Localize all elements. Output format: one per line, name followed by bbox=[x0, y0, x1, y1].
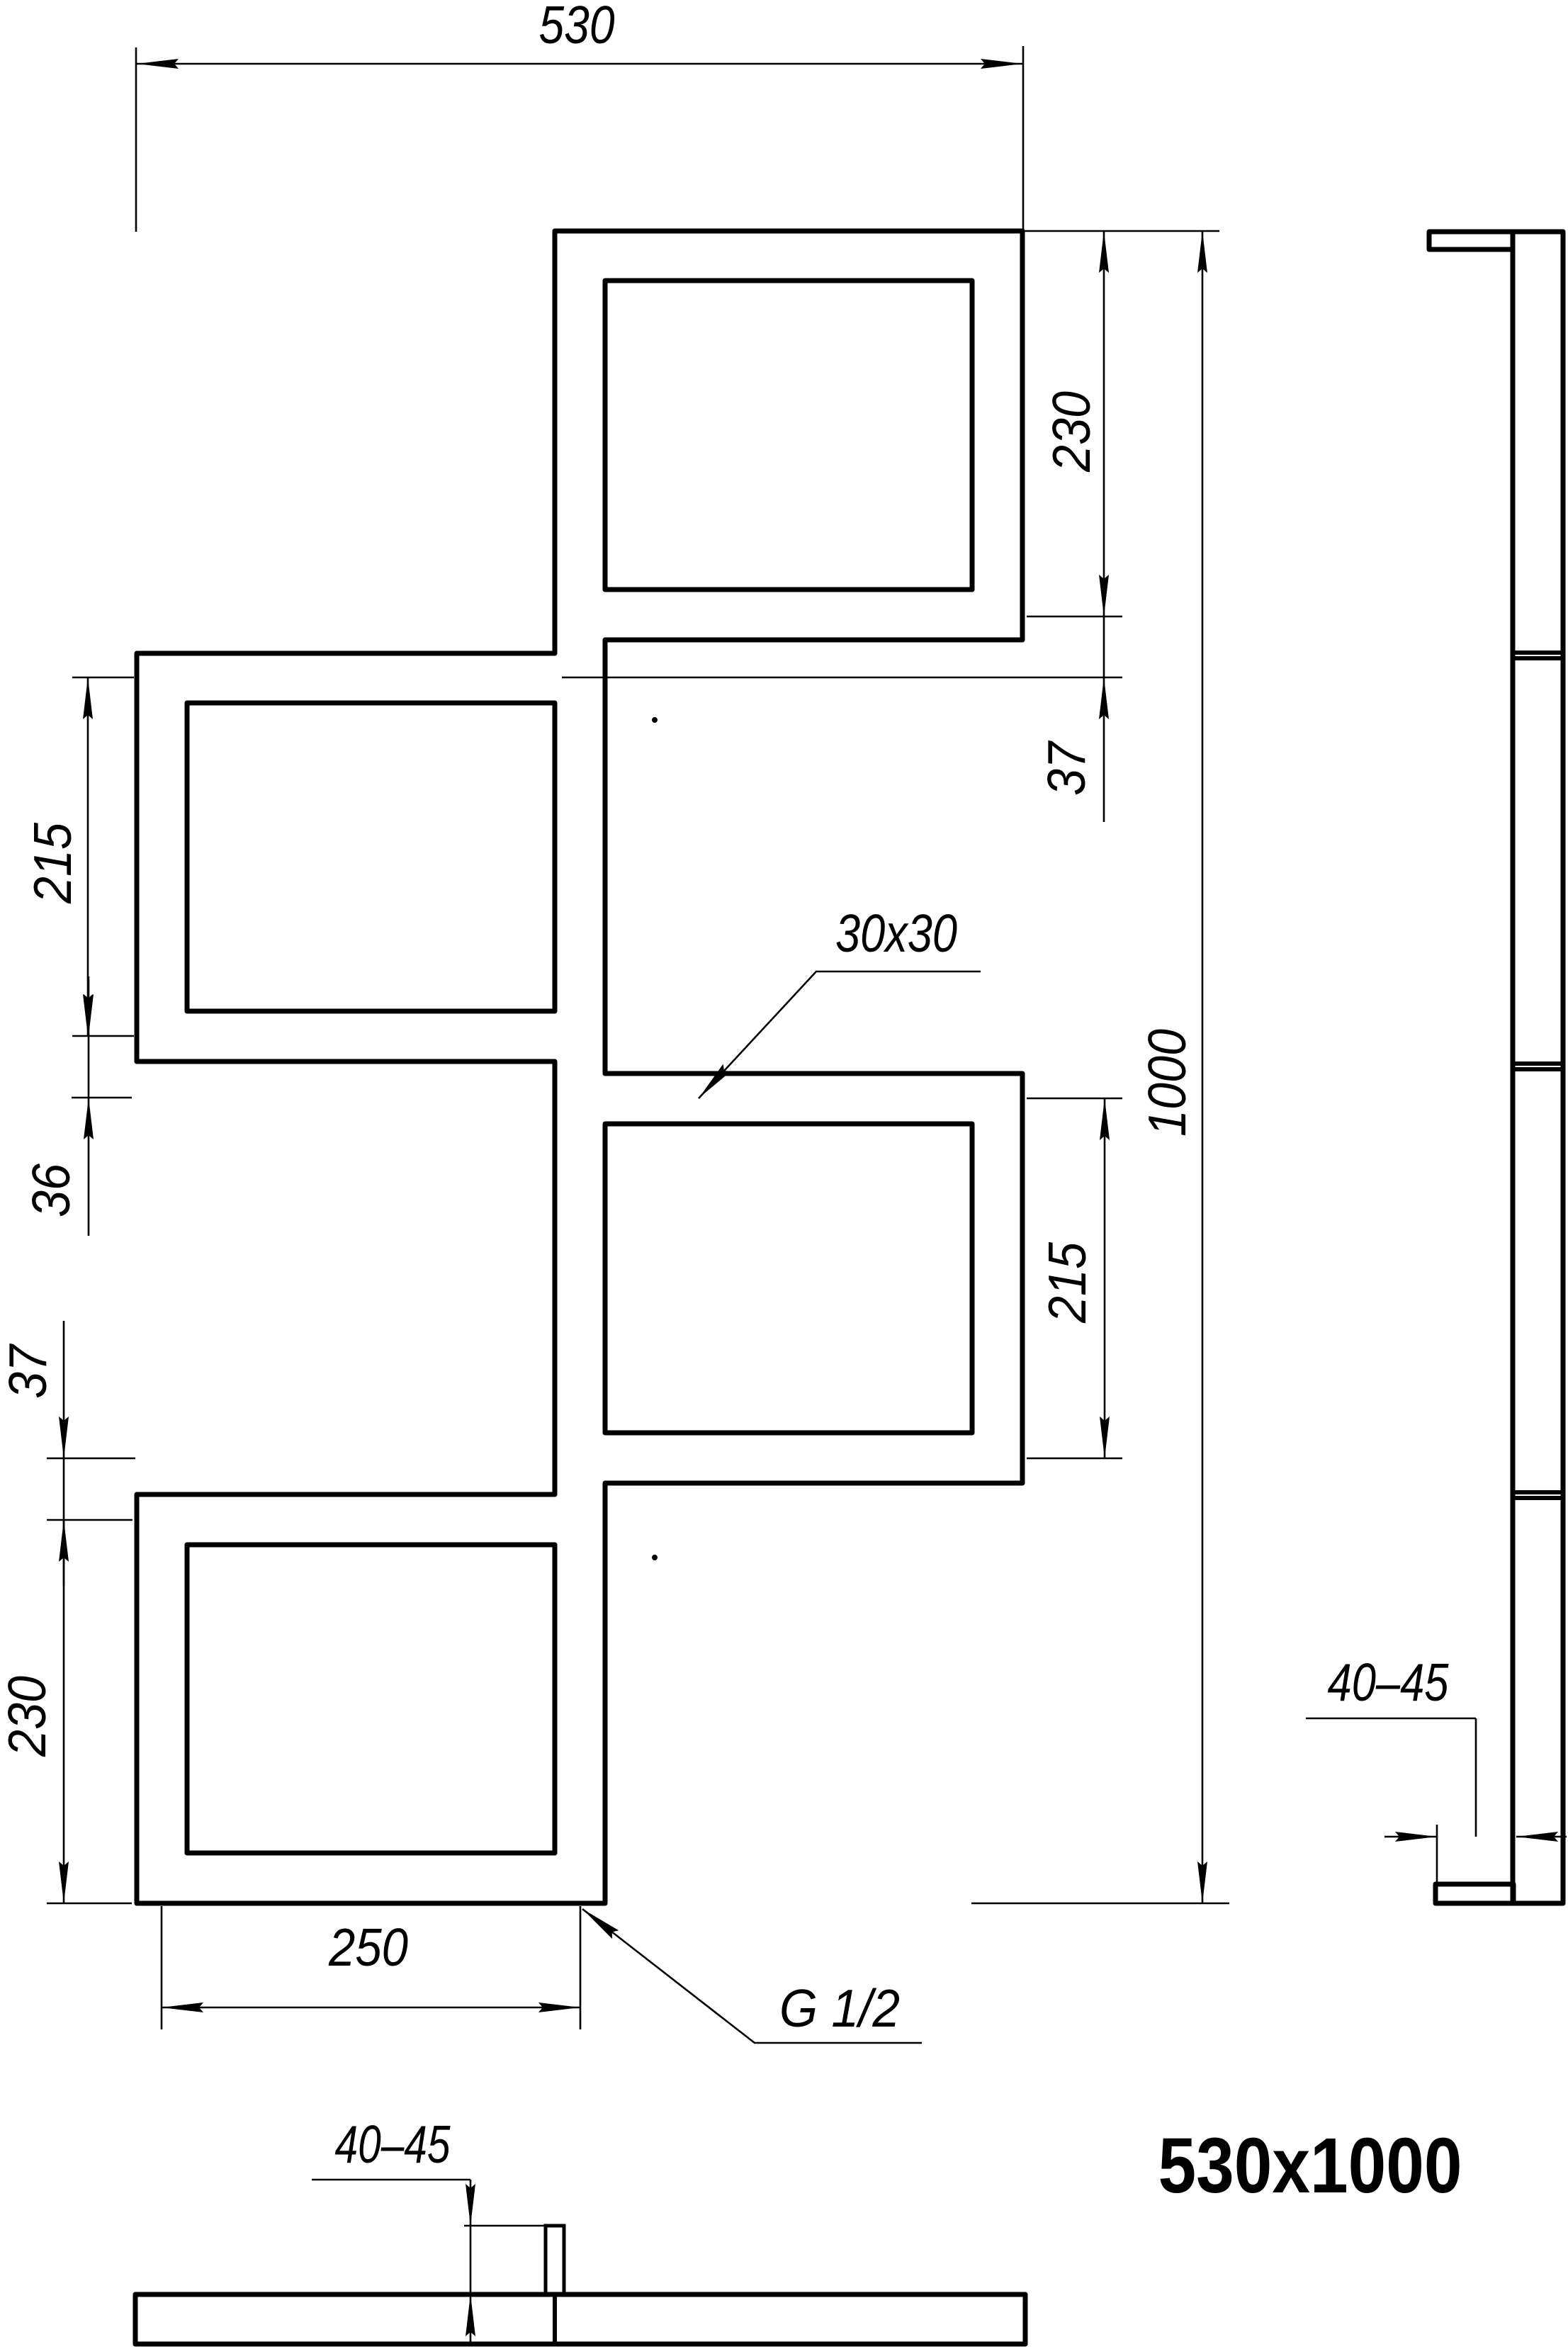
svg-text:36: 36 bbox=[21, 1164, 81, 1217]
svg-text:530: 530 bbox=[539, 0, 615, 55]
svg-text:230: 230 bbox=[0, 1676, 57, 1757]
svg-text:215: 215 bbox=[23, 823, 82, 904]
svg-text:40–45: 40–45 bbox=[1328, 1652, 1449, 1712]
svg-text:37: 37 bbox=[0, 1343, 57, 1399]
svg-text:250: 250 bbox=[328, 1917, 408, 1977]
svg-text:230: 230 bbox=[1042, 391, 1101, 473]
svg-text:215: 215 bbox=[1037, 1242, 1097, 1324]
svg-text:G 1/2: G 1/2 bbox=[779, 1978, 900, 2038]
svg-text:37: 37 bbox=[1037, 740, 1096, 796]
svg-text:530x1000: 530x1000 bbox=[1158, 2122, 1462, 2209]
svg-text:30x30: 30x30 bbox=[835, 903, 957, 963]
svg-text:1000: 1000 bbox=[1137, 1029, 1197, 1137]
svg-text:40–45: 40–45 bbox=[335, 2114, 451, 2174]
